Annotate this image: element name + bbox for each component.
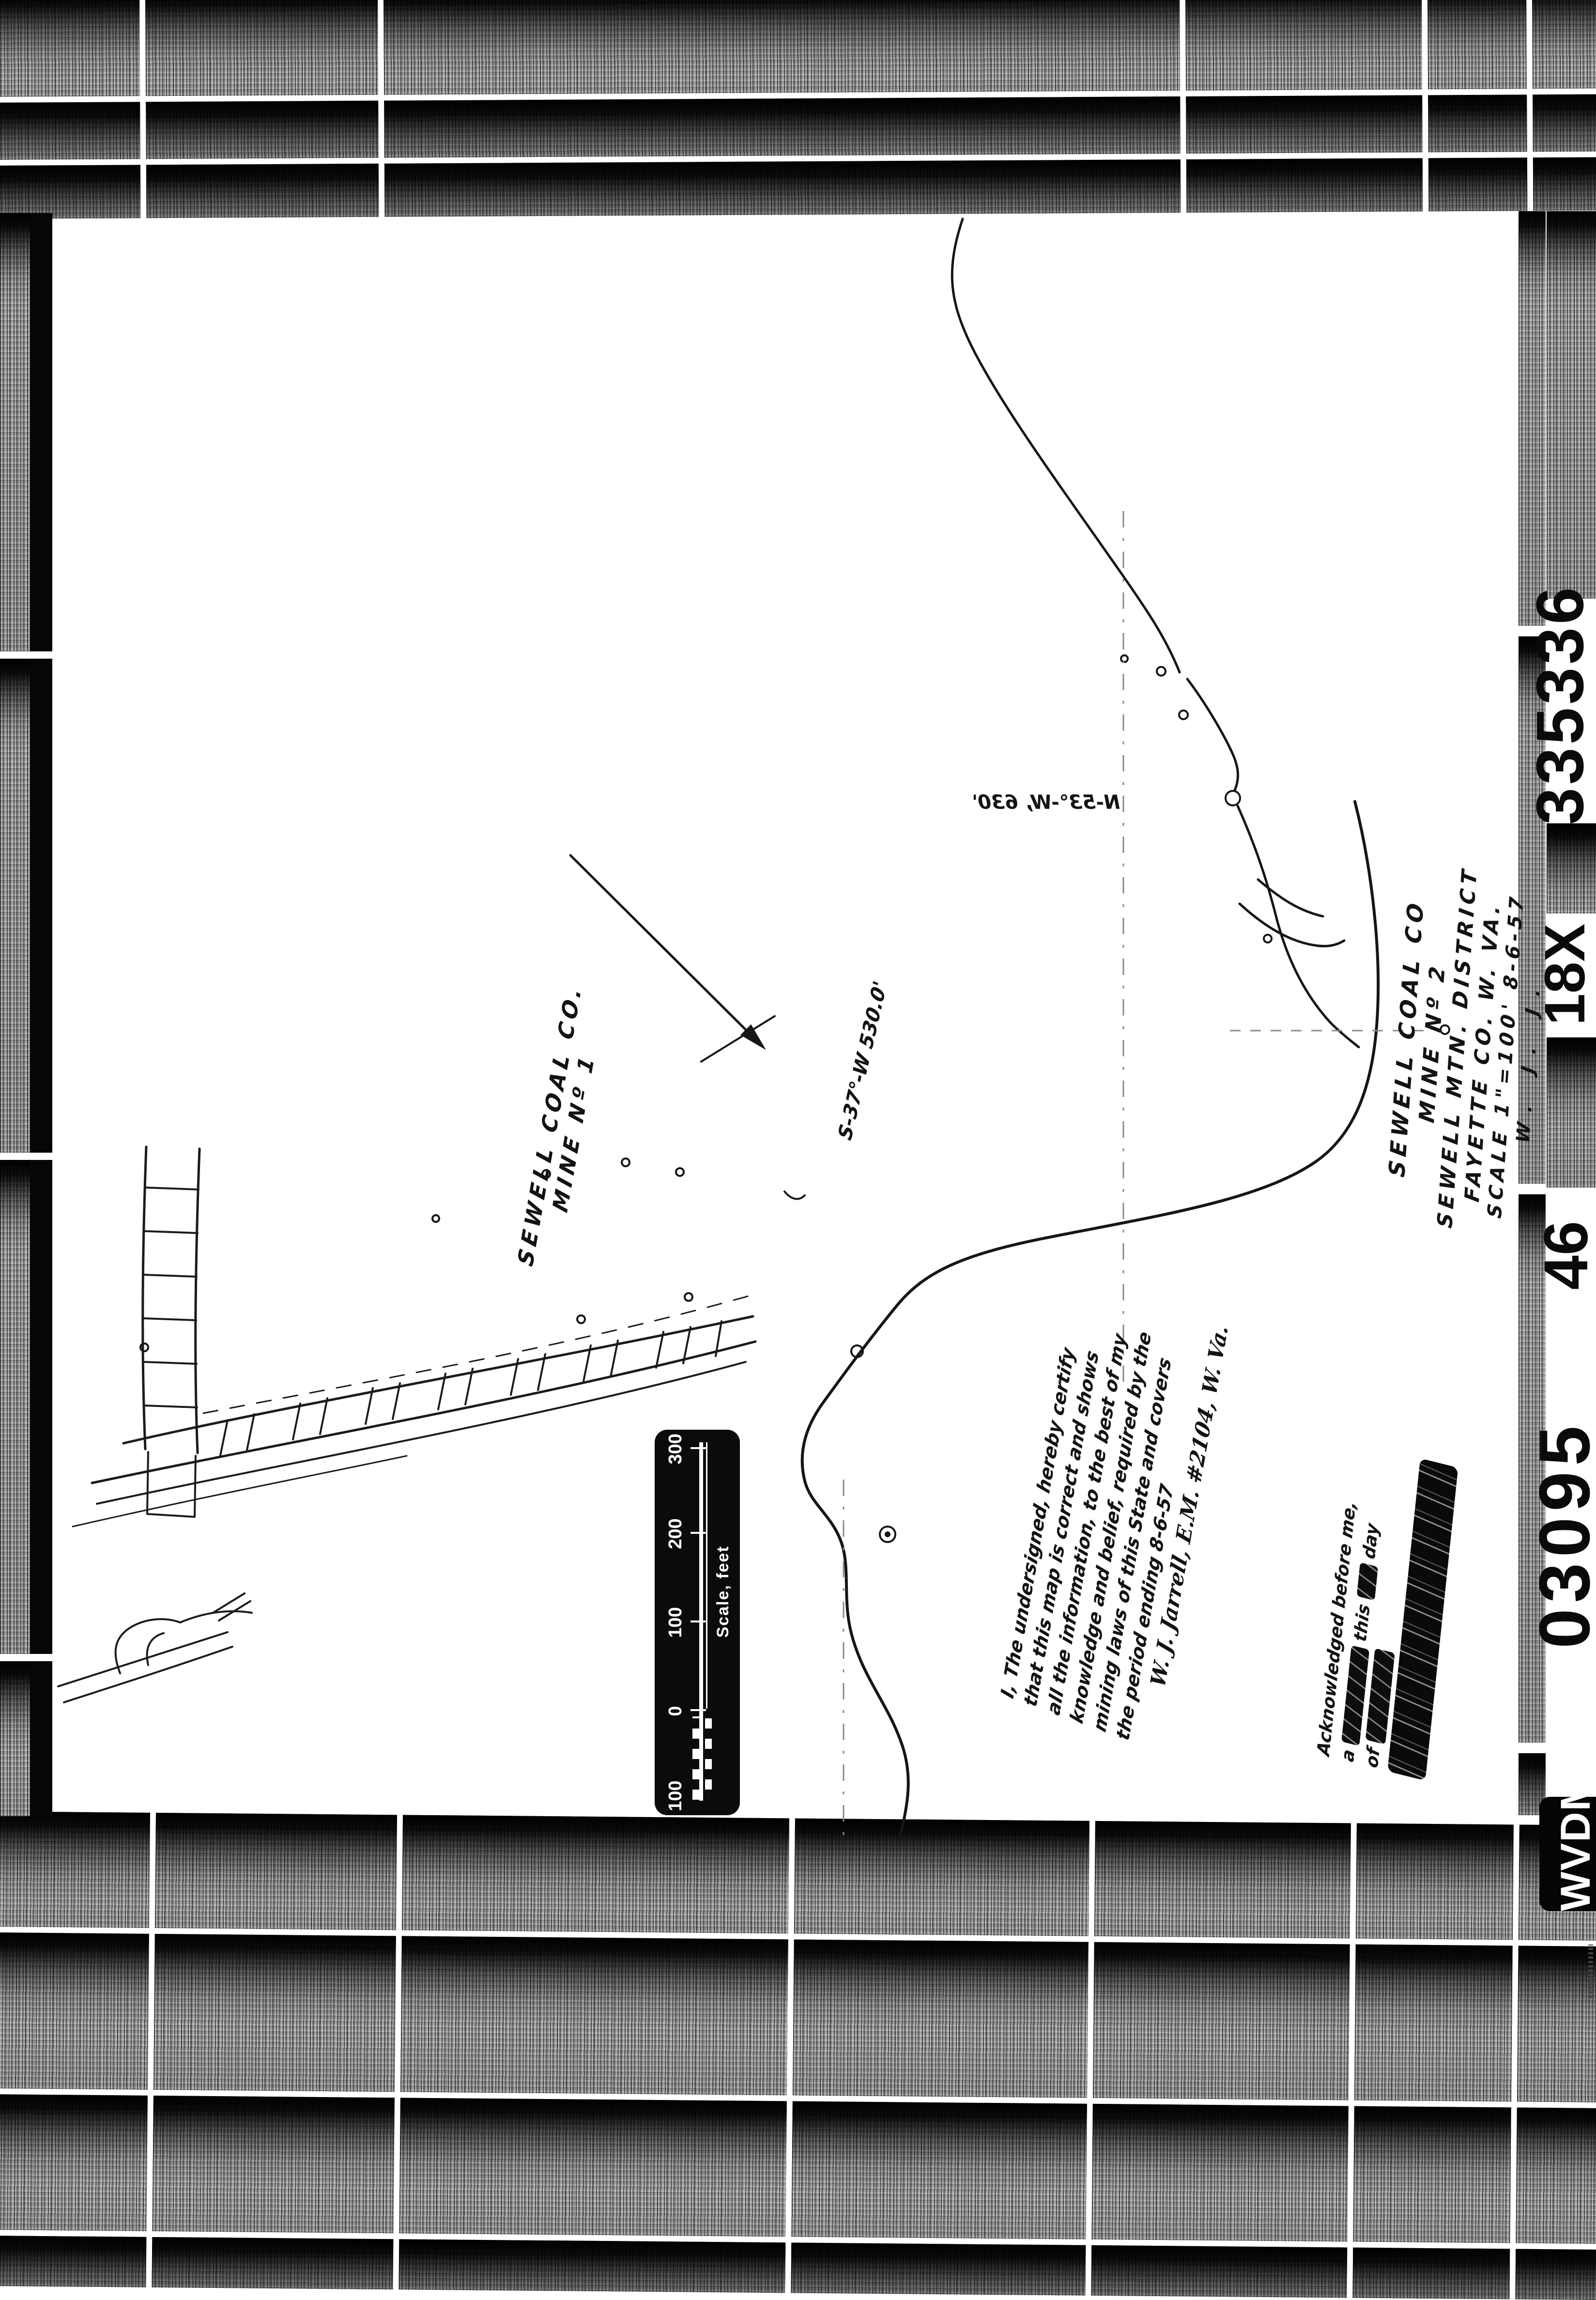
ink-smudge [1341, 1645, 1369, 1746]
branch-crosscuts [143, 1188, 199, 1407]
station-marker [432, 1215, 439, 1222]
stream-line-2 [1187, 679, 1238, 790]
scale-tick [691, 1621, 706, 1622]
stream-branch-2 [1240, 904, 1344, 946]
station-marker [577, 1315, 585, 1323]
edge-number-03095: 03095 [1526, 1331, 1596, 1738]
station-marker [1226, 791, 1240, 805]
lower-entry-2 [64, 1647, 232, 1702]
edge-number-text: 03095 [1524, 1331, 1596, 1738]
scale-checker-top [692, 1716, 699, 1800]
heading-rail-stub [73, 1456, 407, 1527]
check-mark [784, 1191, 805, 1199]
lower-workings [58, 1611, 252, 1702]
micro-marks [1588, 1945, 1593, 1998]
ink-smudge [1356, 1562, 1378, 1601]
scale-tick [691, 1447, 706, 1449]
lower-turn-2 [147, 1633, 164, 1665]
heading-rail-top [123, 1316, 753, 1443]
survey-stations [140, 655, 1449, 1542]
station-marker [685, 1293, 692, 1301]
scale-tick [691, 1709, 706, 1711]
scale-tick [691, 1532, 706, 1534]
scale-bar-face: 100 0 100 200 300 Scale, feet [655, 1430, 740, 1815]
microfilm-scan: { "titles": { "mine2": ["SEWELL COAL CO"… [0, 0, 1596, 2266]
ack-line2-b: this [1350, 1602, 1374, 1644]
wvdm-badge: WVDM [1539, 1797, 1596, 1911]
edge-number-text: 335336 [1522, 597, 1596, 825]
scale-baseline-thin [706, 1442, 707, 1709]
wvdm-badge-text: WVDM [1552, 1797, 1596, 1911]
stream-line-3 [1238, 806, 1359, 1047]
station-dot [886, 1532, 890, 1536]
scale-label: 100 [665, 1781, 686, 1811]
station-marker [622, 1158, 629, 1166]
heading-dashed [203, 1294, 755, 1413]
station-marker [676, 1168, 684, 1176]
scale-bar: 100 0 100 200 300 Scale, feet [655, 1430, 740, 1815]
station-marker [140, 1343, 148, 1351]
station-marker [1264, 935, 1272, 942]
scale-label: 100 [665, 1607, 686, 1637]
station-marker [1121, 655, 1128, 662]
scale-caption: Scale, feet [714, 1545, 733, 1637]
spur-marks [213, 1593, 250, 1621]
scale-label: 300 [665, 1434, 686, 1464]
branch-rail-left [143, 1147, 146, 1449]
scale-label: 0 [665, 1706, 686, 1716]
lower-entry-1 [58, 1632, 228, 1686]
scale-checker-bottom [705, 1716, 712, 1800]
bearing-n53-label: N-53°-W, 630' [935, 789, 1157, 816]
stream-line [952, 219, 1180, 672]
edge-number-text: 18X [1532, 911, 1596, 1037]
edge-number-46: 46 [1532, 1188, 1596, 1323]
edge-number-335336: 335336 [1524, 597, 1596, 825]
ack-line2-c: day [1359, 1521, 1382, 1561]
ink-smudge [1365, 1648, 1395, 1744]
station-marker [1179, 710, 1188, 719]
scale-label: 200 [665, 1518, 686, 1549]
mine-map-linework [0, 0, 1596, 2266]
lower-spur [180, 1611, 252, 1622]
station-marker [1157, 667, 1166, 676]
bearing-n53-text: N-53°-W, 630' [935, 791, 1157, 814]
title-block-mine2: SEWELL COAL CO MINE Nº 2 SEWELL MTN. DIS… [1384, 819, 1549, 1278]
edge-number-18x: 18X [1534, 911, 1596, 1037]
mine1-workings [73, 1147, 755, 1621]
edge-number-text: 46 [1531, 1188, 1596, 1323]
